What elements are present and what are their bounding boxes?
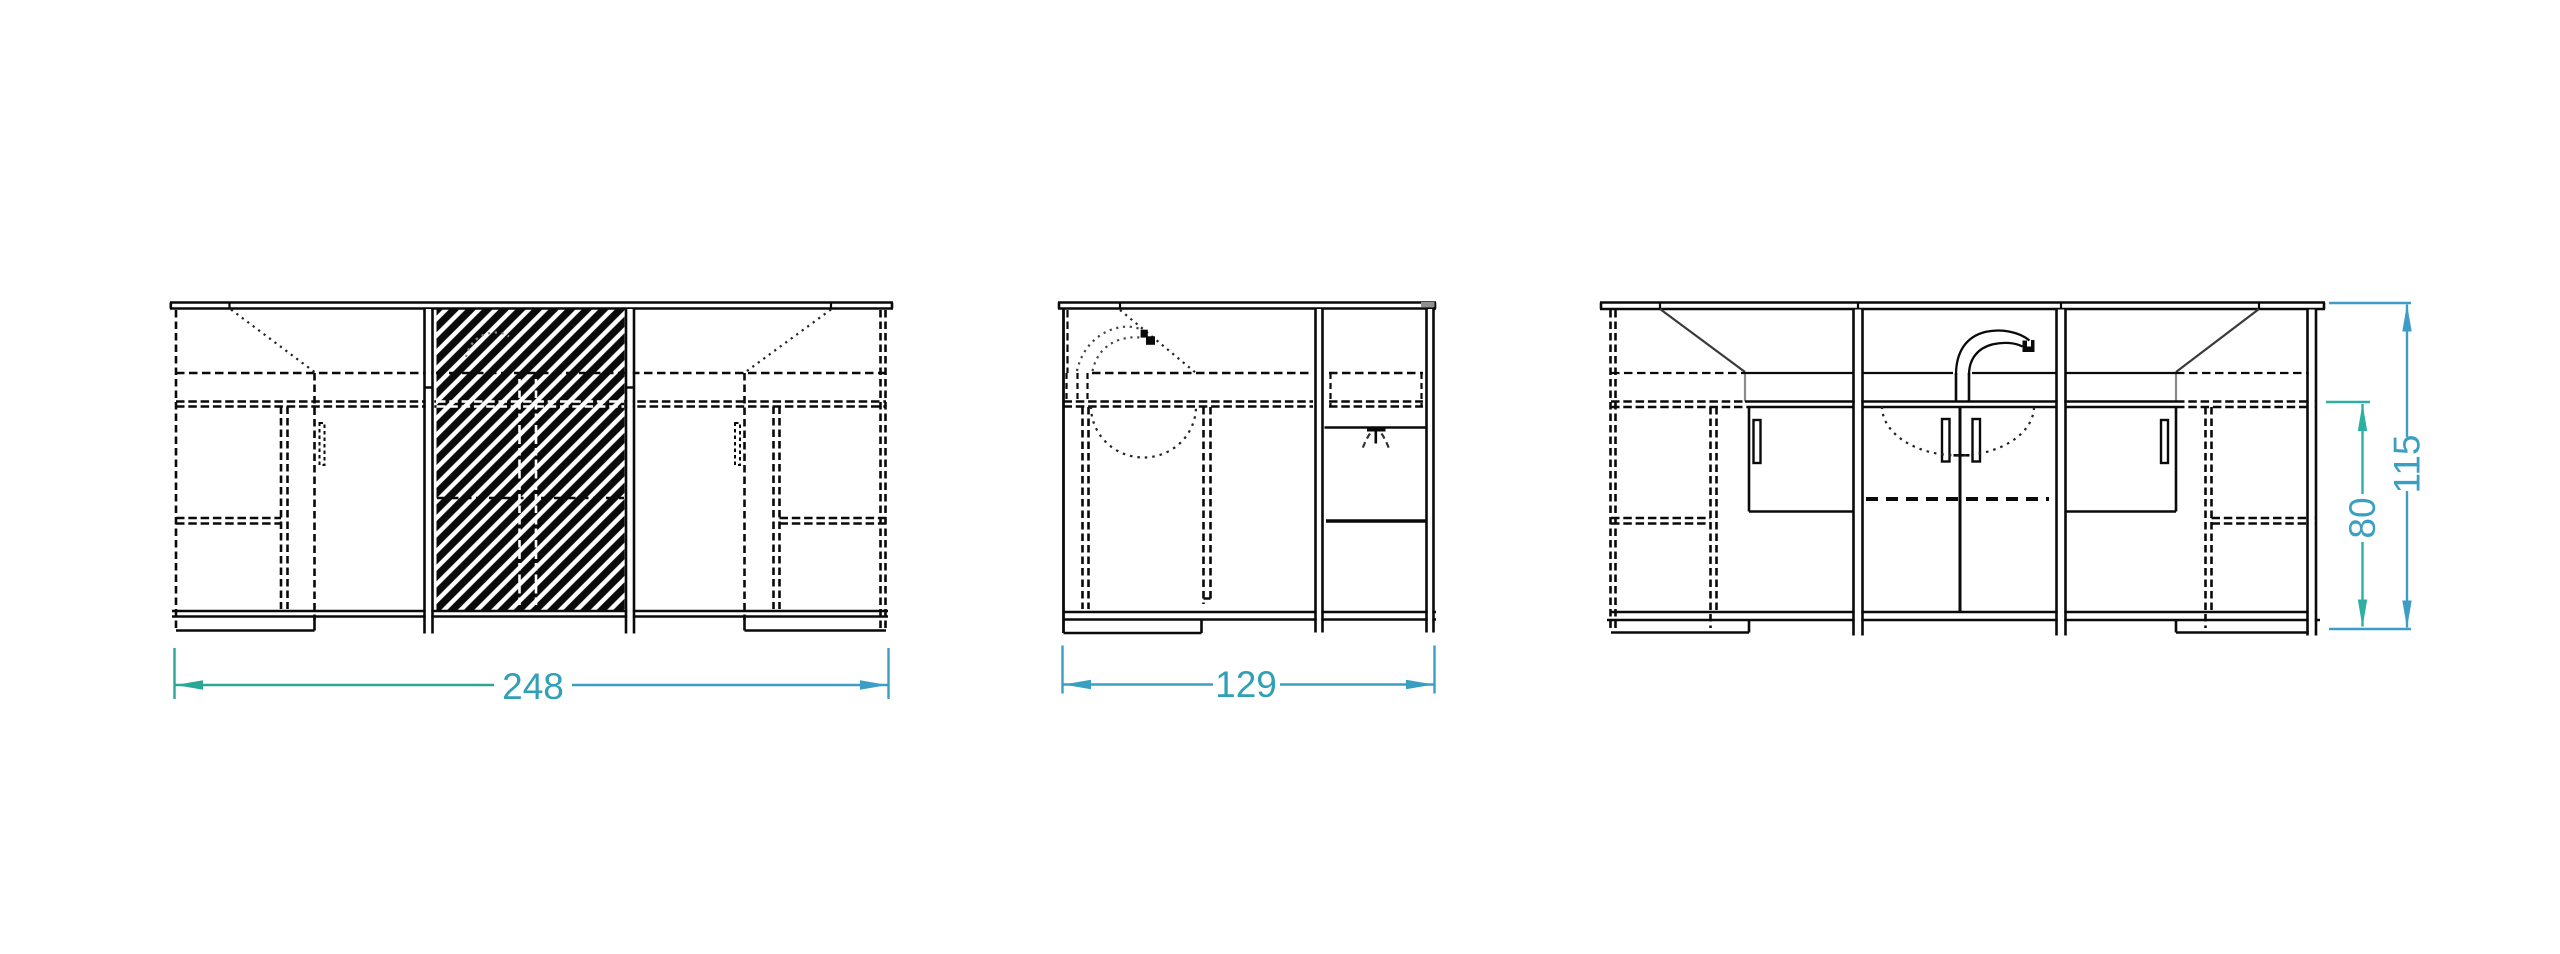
svg-text:80: 80 [2342,497,2383,538]
svg-text:129: 129 [1215,664,1277,705]
svg-text:115: 115 [2387,435,2428,494]
svg-text:248: 248 [502,666,564,707]
